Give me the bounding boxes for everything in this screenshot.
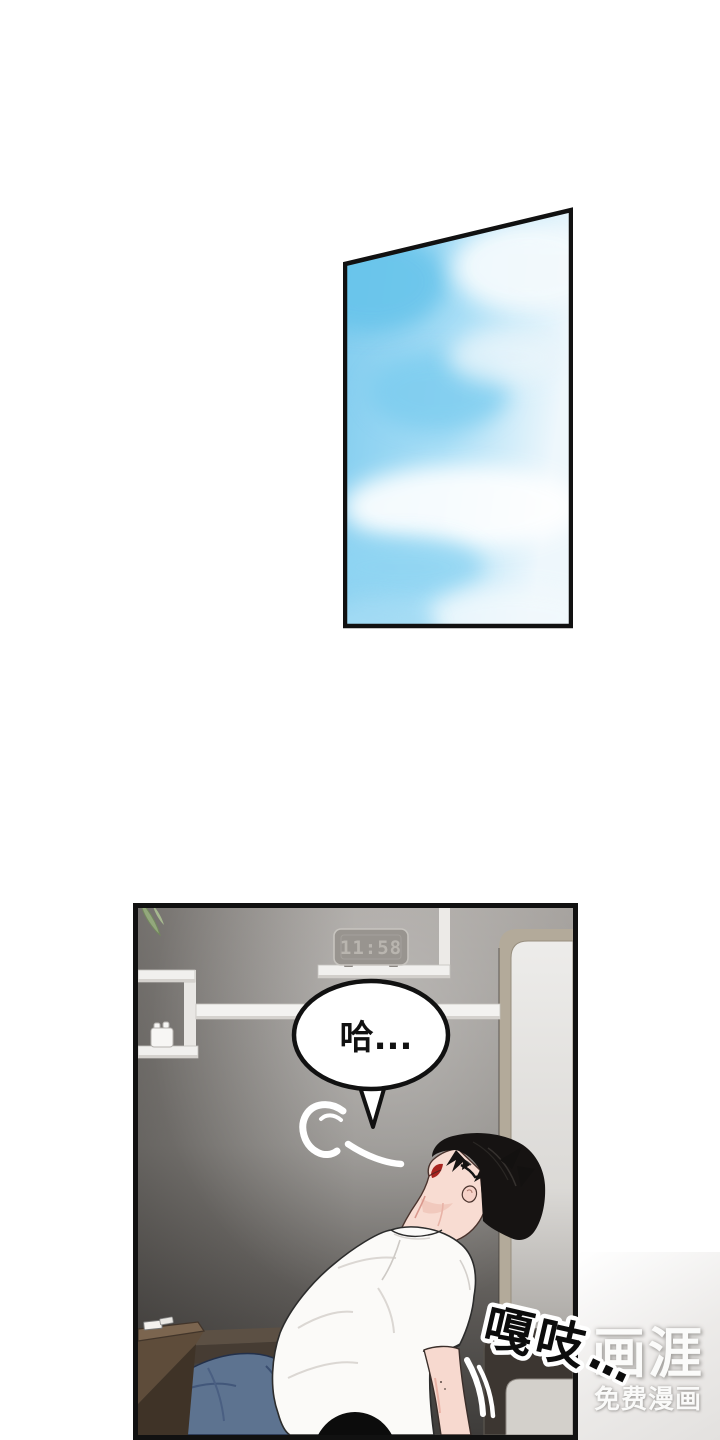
- watermark-logo: 画涯: [578, 1326, 718, 1383]
- watermark: 画涯 免费漫画: [578, 1326, 718, 1413]
- room-art: 11:58: [138, 908, 573, 1435]
- sky-clouds: [343, 207, 573, 629]
- sky-panel: [343, 207, 573, 629]
- ear: [462, 1186, 476, 1202]
- clock-time: 11:58: [340, 937, 402, 959]
- sky-panel-art: [343, 207, 573, 629]
- digital-clock: 11:58: [334, 929, 408, 967]
- comic-page: 11:58: [0, 0, 720, 1440]
- watermark-tagline: 免费漫画: [578, 1386, 718, 1413]
- room-panel: 11:58: [133, 903, 578, 1440]
- speech-bubble-text: 哈...: [340, 1018, 413, 1058]
